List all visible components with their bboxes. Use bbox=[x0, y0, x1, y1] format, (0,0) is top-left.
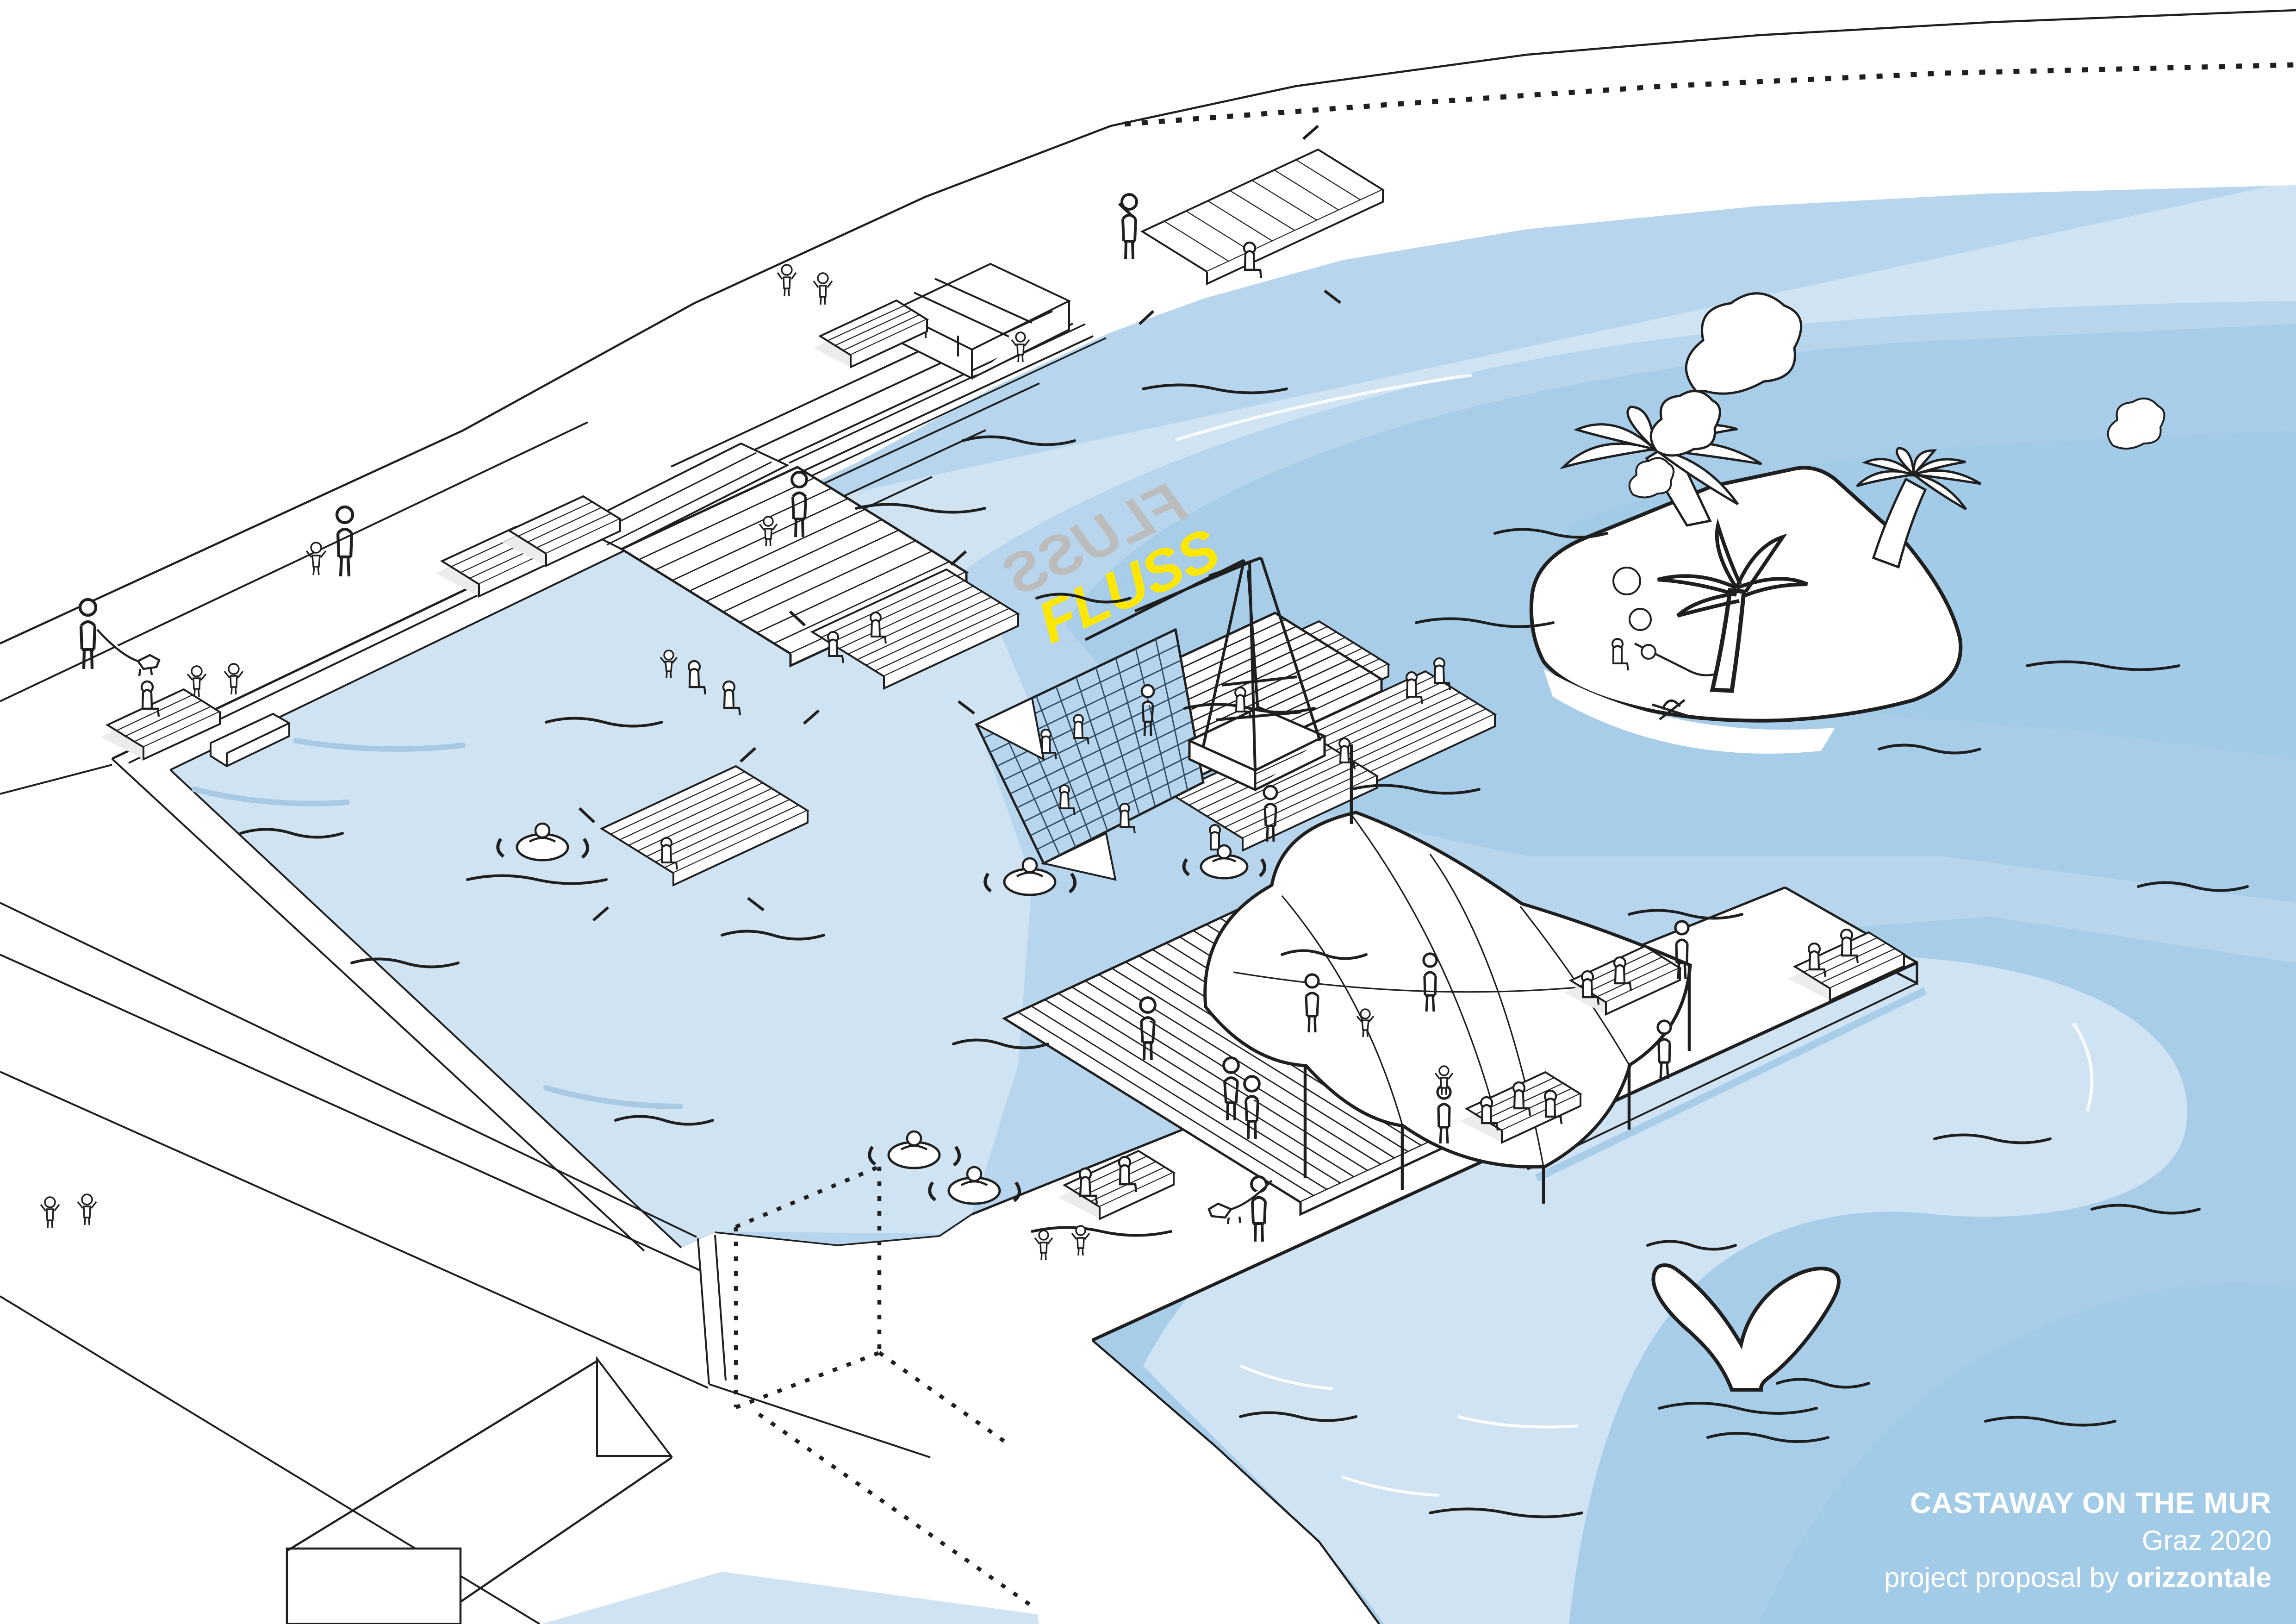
svg-text:Graz 2020: Graz 2020 bbox=[2142, 1525, 2271, 1556]
svg-text:CASTAWAY ON THE MUR: CASTAWAY ON THE MUR bbox=[1910, 1487, 2271, 1519]
svg-text:project proposal by orizzontal: project proposal by orizzontale bbox=[1884, 1562, 2271, 1593]
